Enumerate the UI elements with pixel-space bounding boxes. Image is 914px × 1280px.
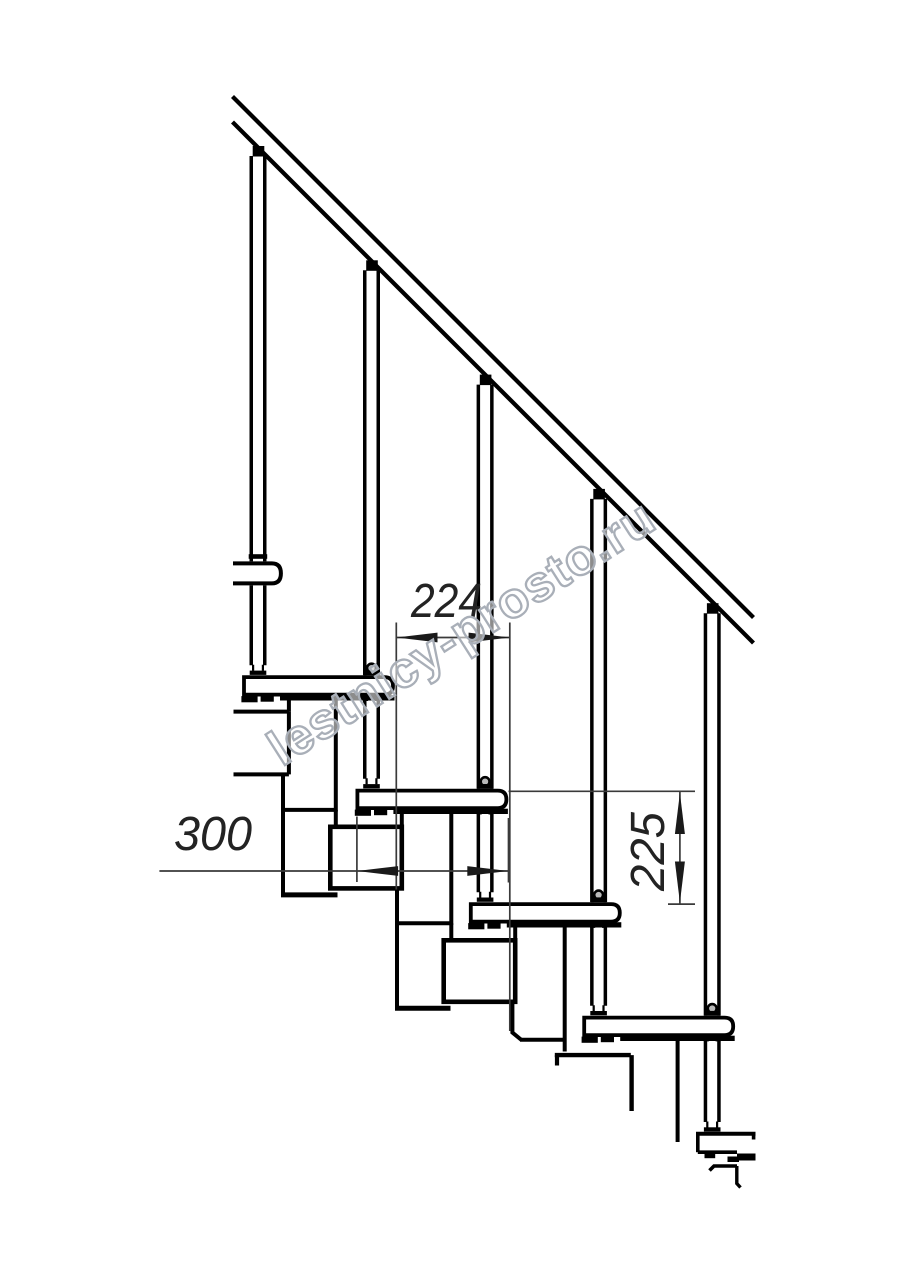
svg-text:300: 300 [174, 808, 252, 861]
svg-text:225: 225 [622, 812, 675, 892]
